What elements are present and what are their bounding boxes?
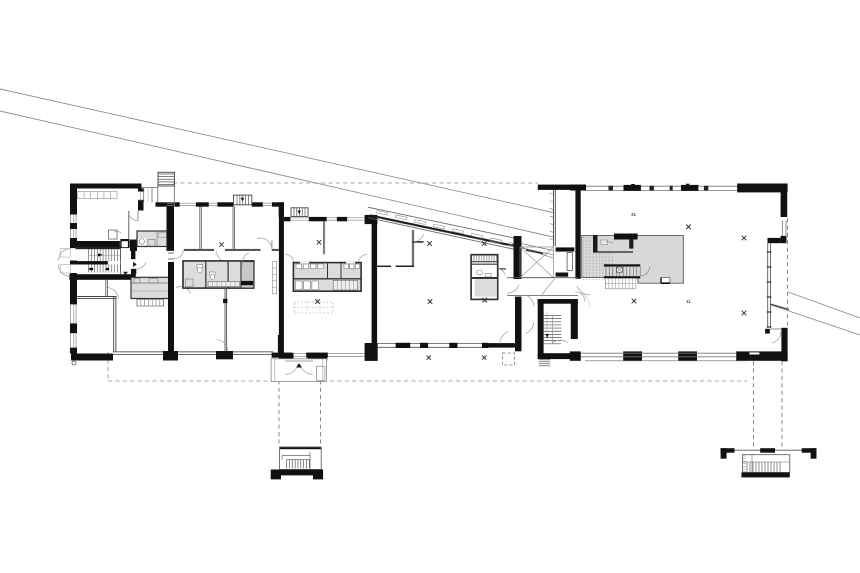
svg-text:11: 11	[686, 299, 691, 304]
svg-text:31: 31	[631, 212, 637, 217]
